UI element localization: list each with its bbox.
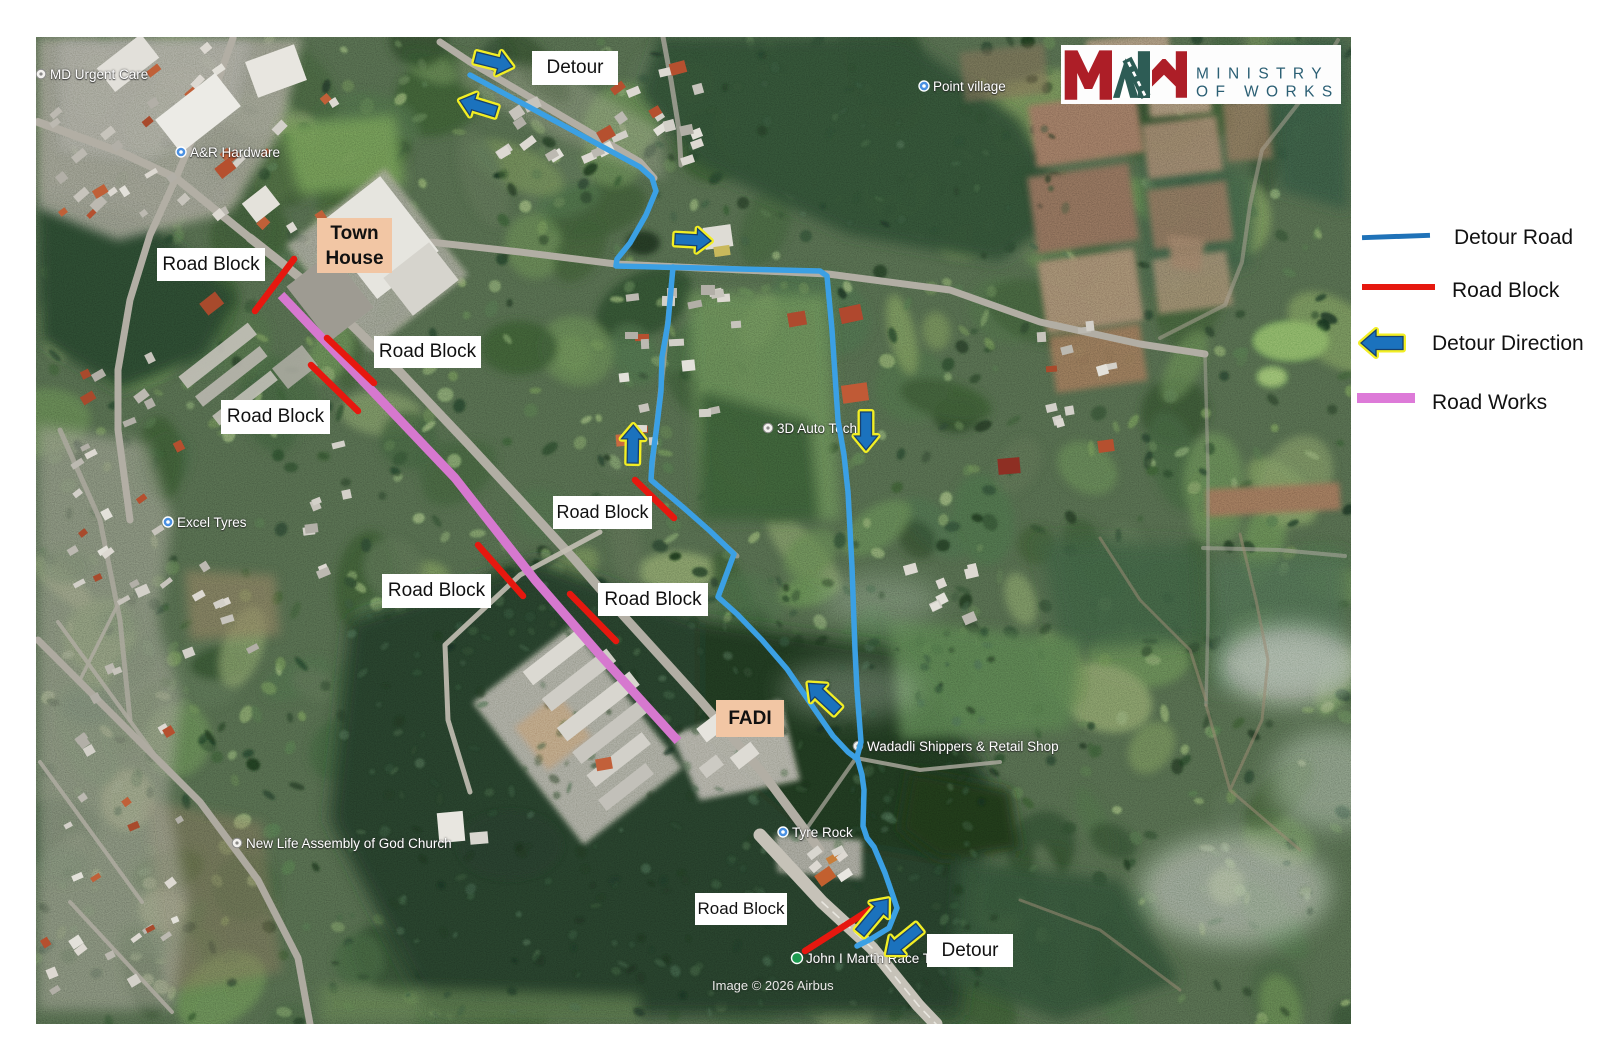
- svg-text:3D Auto Tech: 3D Auto Tech: [777, 421, 857, 436]
- svg-text:Image © 2026 Airbus: Image © 2026 Airbus: [712, 978, 834, 993]
- svg-text:OF WORKS: OF WORKS: [1196, 84, 1340, 101]
- svg-text:Wadadli Shippers & Retail Shop: Wadadli Shippers & Retail Shop: [867, 739, 1059, 754]
- svg-text:MINISTRY: MINISTRY: [1196, 66, 1329, 83]
- svg-text:Excel Tyres: Excel Tyres: [177, 515, 247, 530]
- svg-text:A&R Hardware: A&R Hardware: [190, 145, 280, 160]
- svg-text:Point village: Point village: [933, 79, 1006, 94]
- svg-text:Tyre Rock: Tyre Rock: [792, 825, 853, 840]
- svg-text:MD Urgent Care: MD Urgent Care: [50, 67, 148, 82]
- svg-text:New Life Assembly of God Churc: New Life Assembly of God Church: [246, 836, 452, 851]
- svg-text:John I Martin Race T: John I Martin Race T: [806, 951, 931, 966]
